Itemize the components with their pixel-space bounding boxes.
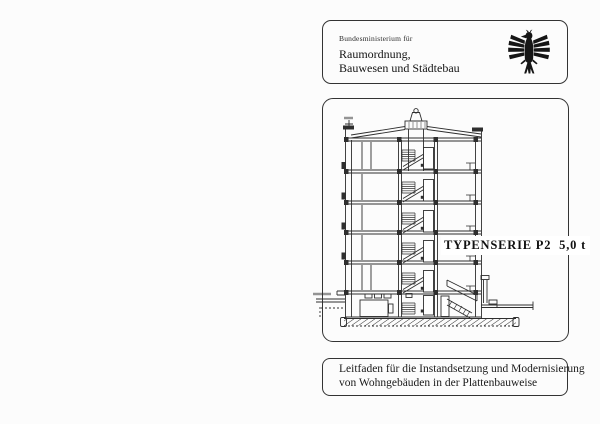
title-line2: von Wohngebäuden in der Plattenbauweise xyxy=(339,377,585,391)
ministry-department-label: Bundesministerium für xyxy=(339,34,413,43)
ministry-name: Raumordnung, Bauwesen und Städtebau xyxy=(339,47,460,75)
federal-eagle-icon xyxy=(508,29,550,75)
ministry-name-line1: Raumordnung, xyxy=(339,47,460,61)
cover-title: Leitfaden für die Instandsetzung und Mod… xyxy=(339,363,585,391)
scanned-cover-page: Bundesministerium für Raumordnung, Bauwe… xyxy=(0,0,600,424)
type-series-label: TYPENSERIE P2 5,0 t xyxy=(441,236,590,255)
drawing-box xyxy=(322,98,569,342)
ministry-name-line2: Bauwesen und Städtebau xyxy=(339,61,460,75)
title-line1: Leitfaden für die Instandsetzung und Mod… xyxy=(339,363,585,377)
